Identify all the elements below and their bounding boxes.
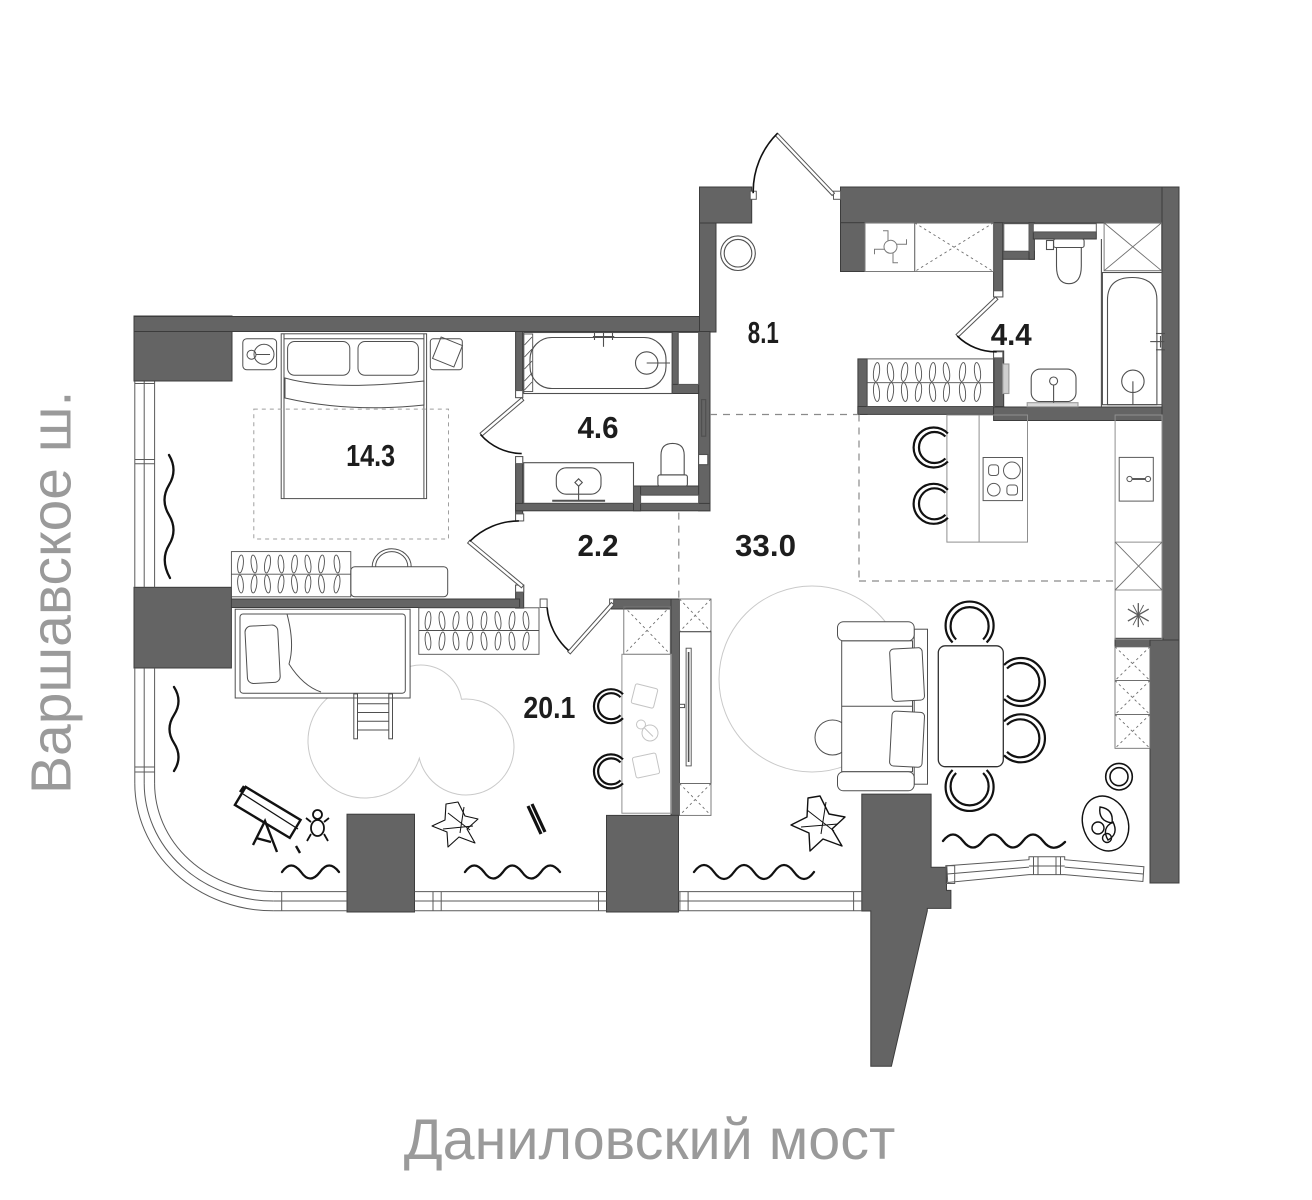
svg-text:8.1: 8.1 [748,315,779,350]
svg-text:14.3: 14.3 [346,438,395,473]
svg-text:4.4: 4.4 [991,317,1033,352]
svg-text:33.0: 33.0 [735,528,796,563]
svg-text:4.6: 4.6 [578,410,619,445]
svg-text:Варшавское ш.: Варшавское ш. [20,391,84,794]
svg-text:20.1: 20.1 [523,690,575,725]
svg-text:2.2: 2.2 [578,528,619,563]
svg-text:Даниловский мост: Даниловский мост [404,1108,896,1172]
